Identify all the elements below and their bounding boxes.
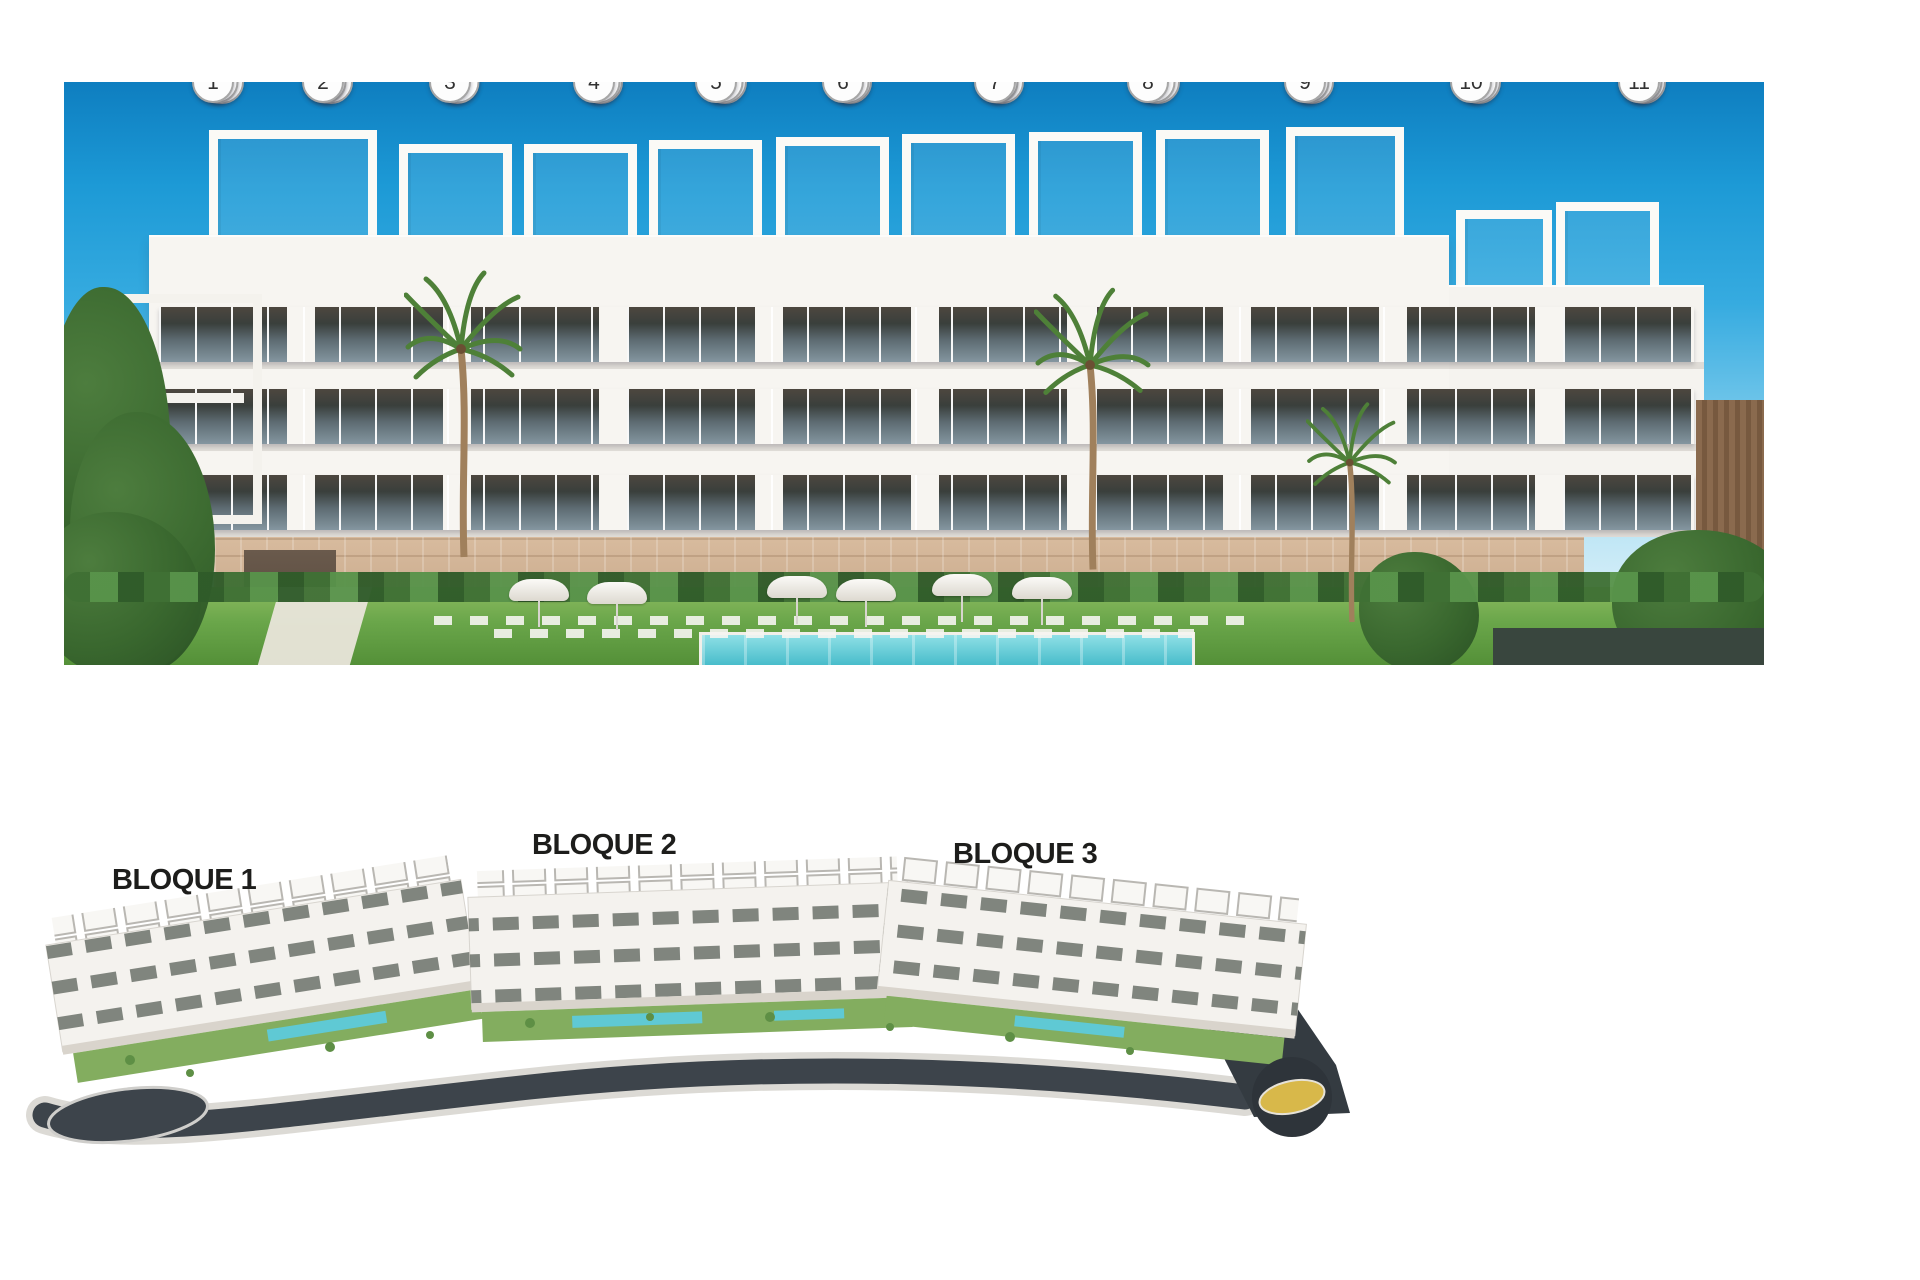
bloque-label-3: BLOQUE 3 — [953, 838, 1097, 871]
unit-badges-layer: 2324252627282930313233121314151617181920… — [64, 82, 1764, 665]
bloque-2-building — [467, 856, 913, 1042]
bloque-label-2: BLOQUE 2 — [532, 829, 676, 862]
bloque-label-1: BLOQUE 1 — [112, 864, 256, 897]
bloque-1-building — [42, 854, 483, 1085]
facade-photo: 2324252627282930313233121314151617181920… — [64, 82, 1764, 665]
bloque-3-building — [874, 855, 1309, 1067]
